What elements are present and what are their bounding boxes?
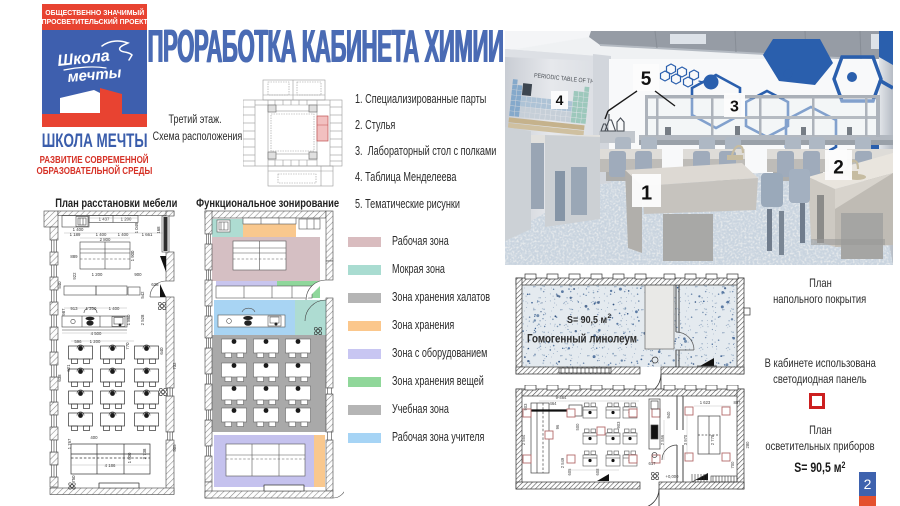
svg-text:638: 638 — [57, 374, 62, 382]
svg-text:168: 168 — [156, 226, 161, 234]
svg-text:1 400: 1 400 — [109, 306, 120, 311]
svg-text:400: 400 — [90, 435, 98, 440]
svg-text:1 623: 1 623 — [700, 400, 711, 405]
svg-text:2: 2 — [608, 313, 612, 320]
svg-text:2 549: 2 549 — [560, 457, 565, 468]
svg-text:280: 280 — [745, 441, 750, 449]
svg-text:3: 3 — [730, 99, 739, 116]
svg-text:1 860: 1 860 — [126, 314, 131, 325]
svg-text:5: 5 — [641, 69, 652, 90]
svg-text:605: 605 — [567, 468, 572, 476]
svg-text:1: 1 — [641, 183, 652, 205]
svg-text:621: 621 — [66, 364, 71, 372]
svg-text:1 400: 1 400 — [118, 232, 129, 237]
svg-text:542: 542 — [140, 291, 145, 299]
svg-text:Гомогенный линолеум: Гомогенный линолеум — [527, 333, 637, 346]
svg-text:S= 90,5 м: S= 90,5 м — [567, 314, 607, 326]
svg-text:+0,000: +0,000 — [666, 474, 680, 479]
svg-text:903: 903 — [616, 421, 621, 429]
svg-text:922: 922 — [72, 272, 77, 280]
svg-text:617: 617 — [649, 461, 657, 466]
svg-text:887: 887 — [734, 400, 742, 405]
svg-text:1 200: 1 200 — [86, 306, 97, 311]
svg-text:750: 750 — [71, 475, 76, 483]
svg-text:732: 732 — [172, 362, 177, 370]
svg-text:903: 903 — [523, 403, 528, 411]
svg-text:96: 96 — [555, 424, 560, 429]
svg-text:913: 913 — [70, 306, 78, 311]
svg-text:640: 640 — [159, 347, 164, 355]
svg-text:608: 608 — [595, 468, 600, 476]
svg-text:1 900: 1 900 — [130, 250, 135, 261]
svg-text:2 554: 2 554 — [521, 434, 526, 445]
svg-text:1 767: 1 767 — [67, 438, 72, 449]
svg-text:1 049: 1 049 — [134, 222, 139, 233]
svg-text:540: 540 — [57, 281, 62, 289]
svg-text:2 556: 2 556 — [660, 434, 665, 445]
svg-text:987: 987 — [61, 308, 66, 316]
svg-text:940: 940 — [666, 411, 671, 419]
svg-text:500: 500 — [575, 423, 580, 431]
svg-text:1 200: 1 200 — [90, 339, 101, 344]
svg-text:4 186: 4 186 — [105, 463, 116, 468]
svg-text:4 500: 4 500 — [91, 331, 102, 336]
svg-text:2 778: 2 778 — [710, 434, 715, 445]
svg-text:1 189: 1 189 — [70, 232, 81, 237]
svg-text:1 437: 1 437 — [99, 217, 110, 222]
svg-text:2: 2 — [833, 157, 844, 178]
svg-text:1 200: 1 200 — [121, 217, 132, 222]
svg-text:464: 464 — [550, 401, 558, 406]
svg-text:2 800: 2 800 — [100, 237, 111, 242]
svg-text:3 970: 3 970 — [683, 434, 688, 445]
svg-text:900: 900 — [134, 272, 142, 277]
svg-text:700: 700 — [730, 461, 735, 469]
svg-text:889: 889 — [70, 254, 78, 259]
svg-text:1 661: 1 661 — [142, 232, 153, 237]
svg-text:1 600: 1 600 — [127, 452, 132, 463]
svg-text:770: 770 — [125, 342, 130, 350]
svg-text:9-464: 9-464 — [556, 395, 567, 400]
svg-text:4: 4 — [556, 92, 564, 108]
svg-text:1 200: 1 200 — [92, 272, 103, 277]
svg-text:505: 505 — [172, 444, 177, 452]
svg-text:628: 628 — [151, 282, 159, 287]
svg-text:2 528: 2 528 — [140, 314, 145, 325]
svg-text:596: 596 — [74, 339, 82, 344]
svg-text:2 738: 2 738 — [142, 448, 147, 459]
